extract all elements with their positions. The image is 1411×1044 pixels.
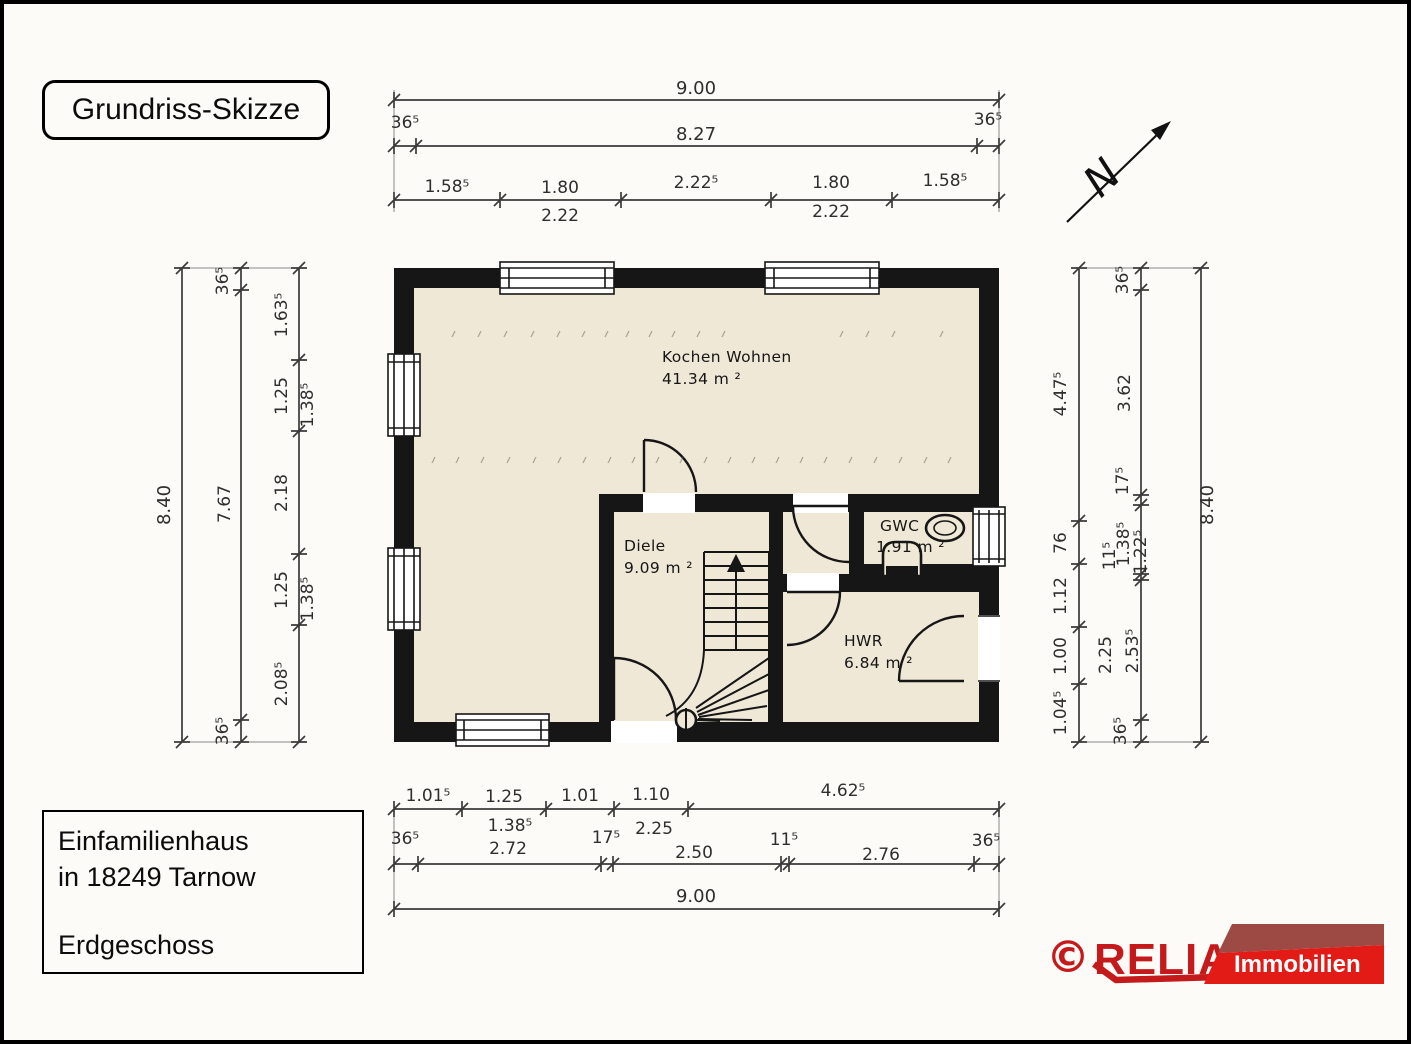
page-title: Grundriss-Skizze [72, 93, 300, 127]
dim-line-right-mid [1133, 262, 1149, 748]
dim-label: 7.67 [215, 485, 235, 523]
dim-label: 1.25 [272, 377, 292, 415]
dim-label: 8.40 [154, 485, 175, 525]
dim-line-right-chain [1071, 262, 1087, 748]
dim-label: 1.63⁵ [272, 293, 292, 338]
dim-label: 36⁵ [972, 831, 1000, 851]
dim-label: 1.58⁵ [425, 177, 470, 197]
room-area-kochen-wohnen: 41.34 m ² [662, 370, 741, 388]
dimension-top: 9.00 36⁵ 8.27 36⁵ 1.58⁵ 1.80 2.22⁵ 1.80 … [388, 78, 1005, 226]
window-bottom [456, 714, 549, 746]
dim-label: 1.38⁵ [298, 577, 318, 622]
dim-label: 1.22⁵ [1131, 530, 1151, 575]
toilet-base [886, 566, 918, 575]
dim-label: 2.22⁵ [674, 173, 719, 193]
room-area-diele: 9.09 m ² [624, 559, 693, 577]
dim-label: 36⁵ [391, 829, 419, 849]
dim-label: 1.25 [485, 787, 523, 807]
dim-label: 1.10 [632, 785, 670, 805]
room-name-gwc: GWC [880, 517, 919, 535]
room-area-hwr: 6.84 m ² [844, 654, 913, 672]
dim-label: 1.38⁵ [298, 383, 318, 428]
floorplan-sheet: 9.00 36⁵ 8.27 36⁵ 1.58⁵ 1.80 2.22⁵ 1.80 … [0, 0, 1411, 1044]
title-box: Grundriss-Skizze [42, 80, 330, 140]
logo-copyright-icon: © [1046, 932, 1090, 983]
logo-banner-text: Immobilien [1234, 951, 1361, 978]
dim-label: 36⁵ [213, 267, 233, 295]
info-line-object: Einfamilienhaus [58, 824, 348, 860]
dim-label: 2.72 [489, 839, 527, 859]
dim-label: 3.62 [1115, 374, 1135, 412]
dim-label: 1.00 [1051, 637, 1071, 675]
north-label: N [1074, 149, 1131, 206]
dim-label: 2.22 [812, 202, 850, 222]
dim-label: 8.40 [1197, 485, 1218, 525]
dim-label: 2.53⁵ [1123, 629, 1143, 674]
dim-label: 4.47⁵ [1051, 372, 1071, 417]
dim-label: 17⁵ [592, 828, 620, 848]
dim-label: 2.76 [862, 845, 900, 865]
window-left-lower [388, 548, 420, 630]
dim-label: 36⁵ [974, 110, 1002, 130]
dim-label: 17⁵ [1113, 467, 1133, 495]
dim-label: 1.38⁵ [488, 816, 533, 836]
relia-logo-graphic: © RELIA Immobilien [1046, 922, 1386, 996]
dim-line-bottom-chain1 [388, 801, 1005, 817]
dim-line-left-mid [233, 262, 249, 748]
dim-label: 1.80 [541, 178, 579, 198]
dim-label: 1.01 [561, 786, 599, 806]
room-name-diele: Diele [624, 537, 666, 555]
dim-label: 1.12 [1051, 577, 1071, 615]
dim-label: 36⁵ [1113, 266, 1133, 294]
room-name-kochen-wohnen: Kochen Wohnen [662, 348, 792, 366]
dim-label: 8.27 [676, 124, 716, 145]
window-top-left [500, 262, 614, 294]
room-name-hwr: HWR [844, 632, 883, 650]
dim-label: 2.18 [272, 474, 292, 512]
dim-label: 11⁵ [770, 830, 798, 850]
dim-label: 76 [1051, 532, 1071, 554]
dimension-right: 4.47⁵ 76 1.12 1.00 1.04⁵ 36⁵ 3.62 17⁵ 11… [1051, 262, 1218, 748]
north-arrow-icon: N [1067, 121, 1171, 222]
dim-label: 1.01⁵ [406, 786, 451, 806]
dimension-bottom: 1.01⁵ 1.25 1.01 1.10 4.62⁵ 1.38⁵ 2.25 36… [388, 781, 1005, 917]
relia-logo: © RELIA Immobilien [1046, 922, 1386, 996]
room-area-gwc: 1.91 m ² [876, 538, 945, 556]
dim-label: 9.00 [676, 78, 716, 99]
dim-label: 36⁵ [1111, 717, 1131, 745]
window-left-upper [388, 354, 420, 436]
dim-label: 2.25 [1096, 636, 1116, 674]
dim-label: 4.62⁵ [821, 781, 866, 801]
dim-label: 1.58⁵ [923, 171, 968, 191]
dim-line-left-chain [291, 262, 307, 748]
dim-label: 1.80 [812, 173, 850, 193]
dim-label: 2.25 [635, 819, 673, 839]
info-line-address: in 18249 Tarnow [58, 860, 348, 896]
dim-label: 2.08⁵ [272, 662, 292, 707]
dim-line-top-chain [388, 192, 1005, 208]
window-top-right [765, 262, 879, 294]
dim-label: 2.50 [675, 843, 713, 863]
dim-label: 1.04⁵ [1051, 691, 1071, 736]
dim-label: 1.25 [272, 571, 292, 609]
dim-label: 9.00 [676, 886, 716, 907]
floor-plan: Kochen Wohnen 41.34 m ² Diele 9.09 m ² G… [388, 262, 1005, 746]
dimension-left: 8.40 36⁵ 7.67 36⁵ 1.63⁵ 1.25 2.18 1.25 2… [154, 262, 318, 748]
dim-label: 36⁵ [391, 113, 419, 133]
dim-label: 2.22 [541, 206, 579, 226]
info-box: Einfamilienhaus in 18249 Tarnow Erdgesch… [42, 810, 364, 974]
info-line-floor: Erdgeschoss [58, 928, 348, 964]
dim-line-left-outer [174, 262, 190, 748]
window-right [973, 507, 1005, 566]
dim-label: 36⁵ [213, 717, 233, 745]
